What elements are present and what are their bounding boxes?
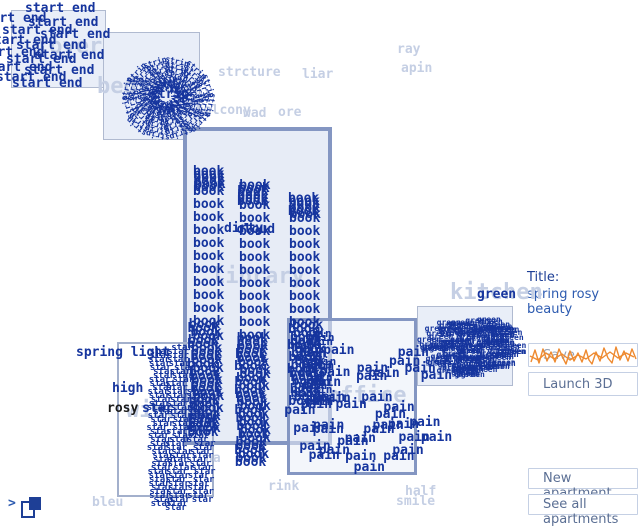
word-green: green — [486, 363, 510, 371]
scribble-annotation-icon — [525, 342, 643, 368]
word-pain: pain — [345, 432, 376, 445]
save-button[interactable]: Save — [528, 343, 638, 367]
word-green: green — [461, 371, 485, 379]
word-pain: pain — [383, 401, 414, 414]
launch-3d-button[interactable]: Launch 3D — [528, 372, 638, 396]
word-pain: pain — [323, 344, 354, 357]
bg-label-strcture: strcture — [218, 66, 281, 79]
bg-label-wad: wad — [243, 107, 266, 120]
word-pain: pain — [354, 461, 385, 474]
word-pain: pain — [313, 419, 344, 432]
placed-word-strip[interactable]: strip — [150, 88, 189, 101]
word-green: green — [438, 361, 462, 369]
word-pain: pain — [383, 450, 414, 463]
word-pain: pain — [399, 431, 430, 444]
word-pain: pain — [368, 367, 399, 380]
bg-label-ray: ray — [397, 43, 420, 56]
word-green: green — [425, 343, 449, 351]
bg-label-bleu: bleu — [92, 496, 123, 509]
word-green: green — [480, 352, 504, 360]
bg-label-apin: apin — [401, 62, 432, 75]
placed-word-green[interactable]: green — [477, 288, 516, 301]
word-star: star — [192, 496, 214, 505]
word-green: green — [438, 325, 462, 333]
bg-label-liar: liar — [302, 68, 333, 81]
word-green: green — [459, 363, 483, 371]
placed-word-cloud[interactable]: cloud — [236, 223, 275, 236]
word-pain: pain — [301, 358, 332, 371]
new-apartment-button[interactable]: New apartment — [528, 468, 638, 489]
word-pain: pain — [299, 440, 330, 453]
placed-word-spring-light[interactable]: spring light — [76, 346, 170, 359]
word-book: book — [235, 456, 266, 469]
placed-word-star[interactable]: star — [142, 402, 173, 415]
placed-word-rosy[interactable]: rosy — [107, 402, 138, 415]
sidebar-toggle[interactable]: > — [6, 493, 46, 517]
word-start-end: start end — [12, 77, 82, 90]
apartment-title-value: spring rosy beauty — [527, 287, 644, 317]
see-all-apartments-button[interactable]: See all apartments — [528, 494, 638, 515]
panel-toggle-icon — [20, 495, 46, 517]
chevron-right-icon: > — [8, 496, 16, 511]
word-pain: pain — [310, 376, 341, 389]
bg-label-smile: smile — [396, 495, 435, 508]
word-star: star — [165, 504, 187, 513]
placed-word-high[interactable]: high — [112, 382, 143, 395]
word-pain: pain — [290, 335, 321, 348]
floorplan-canvas: Title: spring rosy beauty Save Launch 3D… — [0, 0, 644, 528]
word-pain: pain — [301, 398, 332, 411]
word-green: green — [490, 328, 514, 336]
bg-label-ore: ore — [278, 106, 301, 119]
bg-label-rink: rink — [268, 480, 299, 493]
word-green: green — [471, 344, 495, 352]
